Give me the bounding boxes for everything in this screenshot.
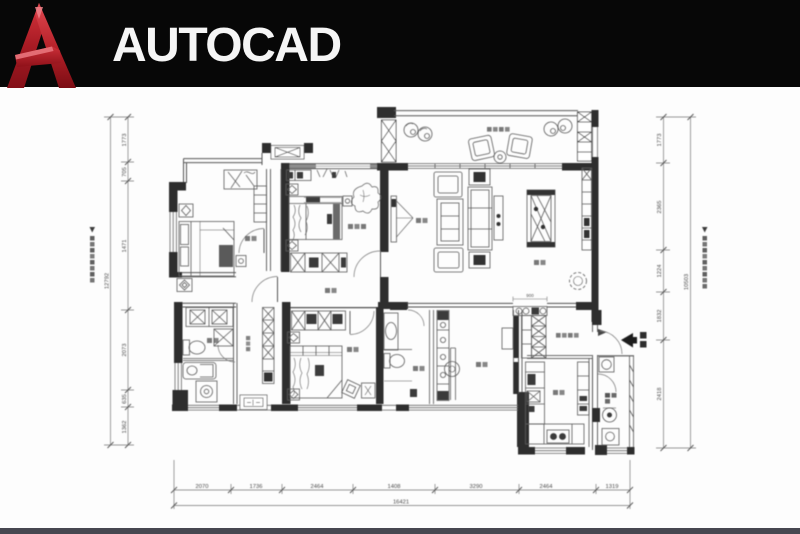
svg-text:1736: 1736 xyxy=(250,484,263,490)
svg-text:AUTOCAD: AUTOCAD xyxy=(112,19,341,72)
svg-text:2418: 2418 xyxy=(657,388,663,401)
svg-text:1224: 1224 xyxy=(657,264,663,278)
svg-text:10503: 10503 xyxy=(684,274,690,290)
svg-text:1408: 1408 xyxy=(388,484,401,490)
svg-text:12792: 12792 xyxy=(105,273,111,289)
svg-text:635: 635 xyxy=(122,394,128,404)
svg-text:3290: 3290 xyxy=(470,484,483,490)
svg-text:1319: 1319 xyxy=(606,484,619,490)
svg-text:1832: 1832 xyxy=(657,310,663,323)
svg-text:2464: 2464 xyxy=(311,484,325,490)
svg-text:705: 705 xyxy=(122,167,128,177)
svg-text:900: 900 xyxy=(526,293,534,298)
svg-text:2464: 2464 xyxy=(540,484,554,490)
svg-text:16421: 16421 xyxy=(393,500,409,506)
svg-text:1773: 1773 xyxy=(657,134,663,147)
svg-text:2073: 2073 xyxy=(122,344,128,357)
svg-text:2070: 2070 xyxy=(196,484,209,490)
svg-text:2365: 2365 xyxy=(657,201,663,214)
svg-text:1471: 1471 xyxy=(122,240,128,253)
svg-text:1362: 1362 xyxy=(122,421,128,434)
svg-text:1773: 1773 xyxy=(122,134,128,147)
